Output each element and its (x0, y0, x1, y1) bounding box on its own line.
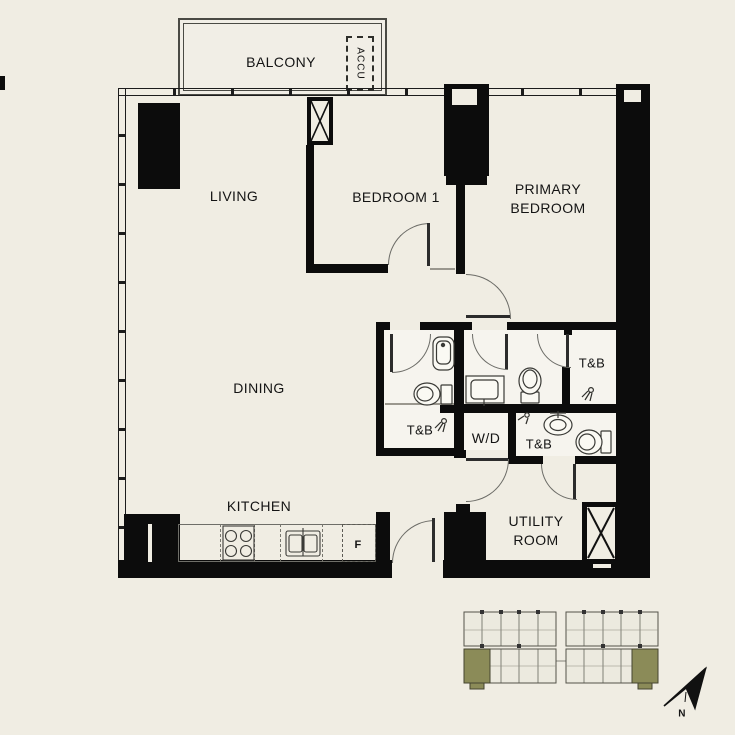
room-label-bedroom1: BEDROOM 1 (352, 189, 440, 205)
toilet-icon (576, 430, 611, 454)
fridge-label: F (354, 539, 361, 551)
north-arrow-icon (664, 668, 706, 709)
room-label-dining: DINING (233, 380, 284, 396)
shaft-x-icon (588, 508, 614, 558)
room-label-wd: W/D (472, 430, 500, 446)
shower-head-icon (582, 388, 593, 401)
kitchen-sink-icon (286, 528, 320, 556)
shower-head-icon (435, 419, 446, 432)
room-label-primary-bedroom: PRIMARY BEDROOM (510, 180, 585, 218)
utility-line1: UTILITY (509, 512, 564, 531)
room-label-utility: UTILITY ROOM (509, 512, 564, 550)
room-label-tb-lower: T&B (526, 437, 552, 452)
room-label-tb-right: T&B (579, 356, 605, 371)
primary-bedroom-line2: BEDROOM (510, 199, 585, 218)
faucet-icon (518, 413, 529, 424)
north-label: N (678, 709, 686, 720)
keyplan (464, 610, 658, 689)
stove-icon (223, 526, 254, 560)
room-label-tb-left: T&B (407, 423, 433, 438)
floor-plan: ACCU (0, 0, 735, 735)
room-label-living: LIVING (210, 188, 258, 204)
round-sink-icon (544, 411, 572, 435)
shaft-x-icon (311, 101, 329, 141)
primary-bedroom-line1: PRIMARY (510, 180, 585, 199)
room-label-kitchen: KITCHEN (227, 498, 291, 514)
toilet-icon (414, 383, 452, 405)
toilet-icon (519, 368, 541, 403)
vanity-sink-icon (466, 376, 504, 406)
fixtures-layer (0, 0, 735, 735)
room-label-balcony: BALCONY (246, 54, 316, 70)
sink-icon (433, 337, 454, 370)
utility-line2: ROOM (509, 531, 564, 550)
